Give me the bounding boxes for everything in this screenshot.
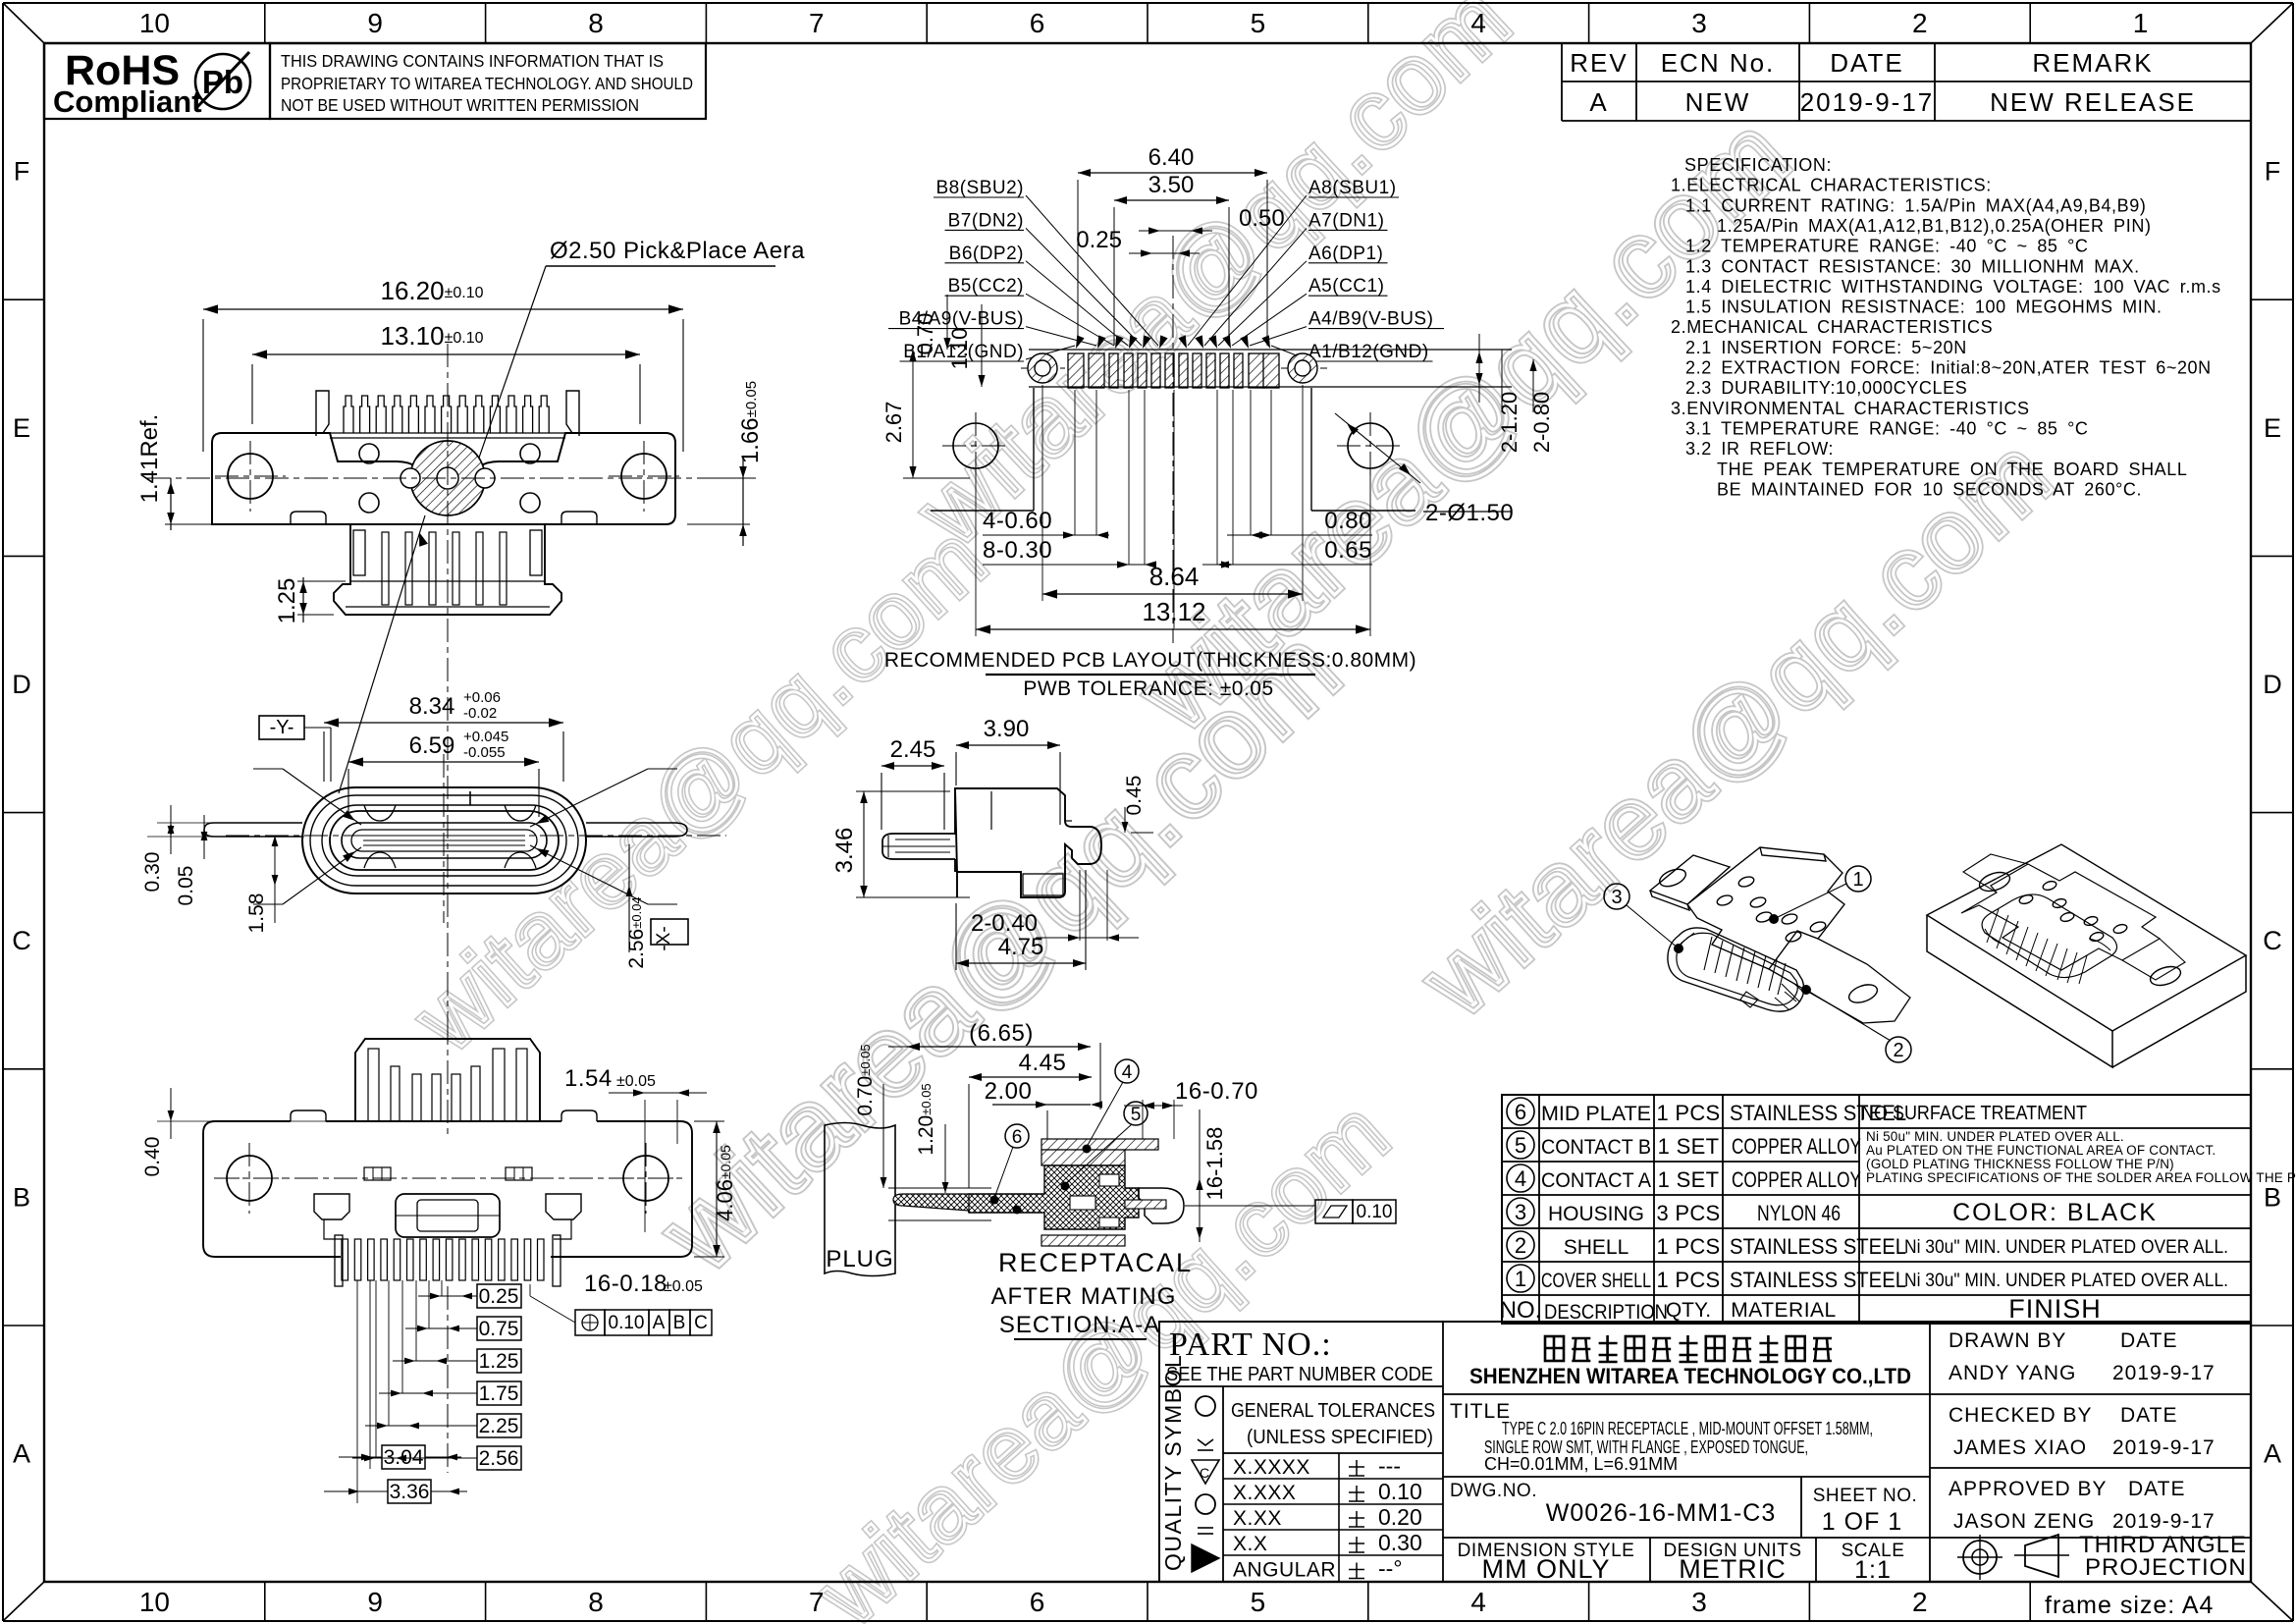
svg-text:A8(SBU1): A8(SBU1): [1308, 178, 1397, 198]
svg-text:+0.045: +0.045: [463, 729, 508, 745]
svg-text:±0.05: ±0.05: [664, 1278, 703, 1295]
svg-text:E: E: [2264, 413, 2281, 443]
svg-text:C: C: [694, 1313, 708, 1333]
svg-text:4-0.60: 4-0.60: [983, 508, 1052, 534]
svg-text:F: F: [2265, 157, 2281, 187]
svg-text:1.25: 1.25: [479, 1350, 519, 1373]
svg-text:6: 6: [1030, 8, 1045, 38]
svg-text:3.90: 3.90: [984, 716, 1030, 742]
svg-text:6.59: 6.59: [409, 732, 455, 759]
svg-text:B: B: [2264, 1182, 2281, 1212]
svg-text:8.64: 8.64: [1149, 562, 1200, 591]
svg-text:2.56: 2.56: [479, 1447, 519, 1470]
svg-text:B: B: [673, 1313, 686, 1333]
svg-text:NOT BE USED WITHOUT WRITTEN PE: NOT BE USED WITHOUT WRITTEN PERMISSION: [281, 95, 639, 115]
svg-text:4: 4: [1122, 1062, 1133, 1083]
svg-text:D: D: [2263, 670, 2282, 699]
svg-text:AFTER MATING: AFTER MATING: [991, 1283, 1177, 1310]
svg-text:1.3 CONTACT RESISTANCE: 30 MIL: 1.3 CONTACT RESISTANCE: 30 MILLIONHM MAX…: [1685, 256, 2140, 276]
svg-text:DATE: DATE: [2128, 1478, 2185, 1500]
svg-text:MM ONLY: MM ONLY: [1481, 1554, 1610, 1584]
svg-text:2.2 EXTRACTION FORCE: Initial:: 2.2 EXTRACTION FORCE: Initial:8~20N,ATER…: [1685, 358, 2212, 378]
svg-text:DESCRIPTION: DESCRIPTION: [1544, 1301, 1668, 1324]
svg-text:QUALITY SYMBOL: QUALITY SYMBOL: [1160, 1354, 1186, 1571]
svg-text:8: 8: [588, 8, 604, 38]
svg-text:B: B: [13, 1182, 30, 1212]
svg-text:PART NO.:: PART NO.:: [1169, 1326, 1332, 1363]
svg-text:1.10: 1.10: [947, 328, 972, 370]
svg-text:PWB TOLERANCE: ±0.05: PWB TOLERANCE: ±0.05: [1023, 677, 1273, 700]
svg-text:Ni 30u" MIN. UNDER PLATED OVER: Ni 30u" MIN. UNDER PLATED OVER ALL.: [1904, 1237, 2228, 1258]
svg-text:0.45: 0.45: [1123, 776, 1146, 816]
svg-text:0.10: 0.10: [1378, 1479, 1422, 1504]
svg-text:0.10: 0.10: [1357, 1202, 1393, 1222]
svg-text:GENERAL TOLERANCES: GENERAL TOLERANCES: [1231, 1400, 1435, 1422]
svg-text:2.1 INSERTION FORCE: 5~20N: 2.1 INSERTION FORCE: 5~20N: [1685, 338, 1967, 357]
svg-text:2019-9-17: 2019-9-17: [2112, 1510, 2216, 1533]
svg-text:2: 2: [1912, 8, 1928, 38]
svg-text:4.45: 4.45: [1019, 1050, 1067, 1076]
svg-text:3.1 TEMPERATURE RANGE: -40 °C: 3.1 TEMPERATURE RANGE: -40 °C ~ 85 °C: [1685, 418, 2089, 438]
svg-text:A6(DP1): A6(DP1): [1308, 244, 1383, 264]
svg-text:A7(DN1): A7(DN1): [1308, 210, 1384, 231]
svg-text:PLUG: PLUG: [826, 1246, 893, 1272]
svg-text:2.MECHANICAL CHARACTERISTICS: 2.MECHANICAL CHARACTERISTICS: [1671, 317, 1993, 337]
svg-text:16-0.70: 16-0.70: [1175, 1078, 1258, 1105]
svg-text:HOUSING: HOUSING: [1548, 1203, 1644, 1225]
svg-text:Ni 50u" MIN. UNDER PLATED OVER: Ni 50u" MIN. UNDER PLATED OVER ALL.: [1866, 1129, 2124, 1144]
svg-text:(6.65): (6.65): [969, 1020, 1034, 1047]
svg-text:THE PEAK TEMPERATURE ON THE BO: THE PEAK TEMPERATURE ON THE BOARD SHALL: [1717, 460, 2188, 479]
svg-text:CONTACT A: CONTACT A: [1541, 1169, 1651, 1192]
svg-text:X.XXXX: X.XXXX: [1233, 1456, 1310, 1479]
svg-text:SHENZHEN WITAREA TECHNOLOGY CO: SHENZHEN WITAREA TECHNOLOGY CO.,LTD: [1469, 1364, 1911, 1388]
svg-text:A1/B12(GND): A1/B12(GND): [1308, 342, 1429, 362]
svg-text:-0.055: -0.055: [463, 744, 506, 761]
svg-text:0.30: 0.30: [141, 852, 164, 893]
svg-text:0.50: 0.50: [1239, 205, 1285, 232]
svg-text:2.3 DURABILITY:10,000CYCLES: 2.3 DURABILITY:10,000CYCLES: [1685, 378, 1967, 398]
svg-text:1.4 DIELECTRIC WITHSTANDING VO: 1.4 DIELECTRIC WITHSTANDING VOLTAGE: 100…: [1685, 277, 2221, 297]
svg-text:ECN No.: ECN No.: [1661, 48, 1776, 78]
svg-text:1: 1: [2133, 8, 2149, 38]
svg-text:F: F: [14, 157, 30, 187]
svg-text:3.2 IR REFLOW:: 3.2 IR REFLOW:: [1685, 439, 1834, 459]
svg-text:CHECKED BY: CHECKED BY: [1949, 1404, 2093, 1427]
svg-text:10: 10: [139, 1587, 170, 1617]
svg-text:1.58: 1.58: [245, 893, 268, 934]
svg-text:0.20: 0.20: [1378, 1504, 1422, 1530]
svg-text:A: A: [1589, 87, 1608, 117]
svg-text:X.XX: X.XX: [1233, 1507, 1282, 1530]
svg-text:8.34: 8.34: [409, 693, 455, 720]
svg-text:1.1 CURRENT RATING: 1.5A/Pin M: 1.1 CURRENT RATING: 1.5A/Pin MAX(A4,A9,B…: [1685, 195, 2146, 215]
svg-text:B7(DN2): B7(DN2): [948, 210, 1024, 231]
svg-text:(GOLD PLATING THICKNESS FOLLOW: (GOLD PLATING THICKNESS FOLLOW THE P/N): [1866, 1157, 2174, 1171]
svg-text:1 OF 1: 1 OF 1: [1822, 1508, 1902, 1536]
svg-text:0.30: 0.30: [1378, 1530, 1422, 1555]
svg-text:13.12: 13.12: [1142, 597, 1205, 626]
svg-text:3: 3: [1691, 8, 1707, 38]
svg-text:MATERIAL: MATERIAL: [1731, 1299, 1836, 1322]
svg-text:3.04: 3.04: [384, 1446, 424, 1469]
svg-text:+0.06: +0.06: [463, 689, 501, 706]
svg-text:A: A: [13, 1439, 30, 1469]
svg-text:-X-: -X-: [654, 926, 674, 950]
svg-text:±0.05: ±0.05: [616, 1073, 656, 1090]
svg-text:RECEPTACAL: RECEPTACAL: [998, 1248, 1193, 1277]
svg-text:16-0.18: 16-0.18: [584, 1271, 667, 1297]
svg-text:STAINLESS STEEL: STAINLESS STEEL: [1730, 1268, 1906, 1292]
svg-text:1.54: 1.54: [564, 1065, 613, 1092]
svg-text:9: 9: [367, 8, 383, 38]
svg-text:-Y-: -Y-: [270, 717, 294, 738]
svg-text:SHELL: SHELL: [1564, 1236, 1629, 1259]
svg-text:1.25A/Pin MAX(A1,A12,B1,B12),0: 1.25A/Pin MAX(A1,A12,B1,B12),0.25A(OHER …: [1717, 216, 2152, 236]
svg-text:5: 5: [1251, 1587, 1266, 1617]
svg-text:1.ELECTRICAL CHARACTERISTICS:: 1.ELECTRICAL CHARACTERISTICS:: [1671, 176, 1992, 195]
svg-text:3.ENVIRONMENTAL CHARACTERISTI: 3.ENVIRONMENTAL CHARACTERISTICS: [1671, 399, 2030, 418]
svg-text:RECOMMENDED PCB LAYOUT(THICKNE: RECOMMENDED PCB LAYOUT(THICKNESS:0.80MM): [884, 649, 1416, 672]
svg-text:4.75: 4.75: [998, 934, 1044, 960]
svg-text:frame size: A4: frame size: A4: [2045, 1592, 2214, 1619]
svg-text:2-Ø1.50: 2-Ø1.50: [1425, 500, 1514, 526]
svg-text:2.25: 2.25: [479, 1415, 519, 1437]
svg-text:4: 4: [1470, 1587, 1486, 1617]
svg-text:2-0.40: 2-0.40: [971, 910, 1038, 937]
svg-text:6: 6: [1515, 1100, 1526, 1124]
svg-text:3: 3: [1515, 1200, 1526, 1224]
svg-text:SEE THE PART NUMBER CODE: SEE THE PART NUMBER CODE: [1166, 1364, 1433, 1385]
svg-text:DATE: DATE: [2120, 1329, 2177, 1352]
svg-text:METRIC: METRIC: [1679, 1554, 1787, 1584]
svg-text:2019-9-17: 2019-9-17: [2112, 1362, 2216, 1384]
svg-text:CONTACT B: CONTACT B: [1541, 1136, 1651, 1159]
svg-text:CH=0.01MM, L=6.91MM: CH=0.01MM, L=6.91MM: [1484, 1454, 1678, 1474]
svg-text:1.75: 1.75: [479, 1382, 519, 1405]
svg-text:8: 8: [588, 1587, 604, 1617]
svg-text:PLATING SPECIFICATIONS OF THE: PLATING SPECIFICATIONS OF THE SOLDER ARE…: [1866, 1170, 2296, 1185]
svg-text:1 SET: 1 SET: [1658, 1134, 1720, 1159]
svg-text:A: A: [2264, 1439, 2281, 1469]
svg-text:16-1.58: 16-1.58: [1202, 1127, 1227, 1201]
svg-text:A: A: [653, 1313, 666, 1333]
svg-text:1: 1: [1852, 869, 1863, 891]
svg-text:SPECIFICATION:: SPECIFICATION:: [1684, 155, 1832, 175]
svg-text:2.67: 2.67: [881, 402, 906, 444]
svg-text:NO.: NO.: [1500, 1297, 1542, 1324]
svg-text:3: 3: [1691, 1587, 1707, 1617]
svg-text:0.75: 0.75: [479, 1318, 519, 1340]
svg-text:REMARK: REMARK: [2032, 48, 2153, 78]
svg-text:A5(CC1): A5(CC1): [1308, 276, 1384, 297]
svg-text:JASON ZENG: JASON ZENG: [1953, 1510, 2095, 1533]
svg-text:NO SURFACE TREATMENT: NO SURFACE TREATMENT: [1861, 1103, 2087, 1124]
svg-text:(UNLESS SPECIFIED): (UNLESS SPECIFIED): [1247, 1427, 1433, 1448]
svg-text:COPPER ALLOY: COPPER ALLOY: [1732, 1167, 1861, 1192]
svg-text:0.70: 0.70: [913, 313, 937, 355]
svg-text:0.25: 0.25: [479, 1285, 519, 1308]
svg-text:1.25: 1.25: [274, 578, 300, 624]
svg-text:Ni 30u" MIN. UNDER PLATED OVER: Ni 30u" MIN. UNDER PLATED OVER ALL.: [1904, 1271, 2228, 1291]
svg-text:B5(CC2): B5(CC2): [948, 276, 1024, 297]
svg-text:5: 5: [1251, 8, 1266, 38]
svg-text:3: 3: [1611, 887, 1622, 908]
svg-text:7: 7: [809, 1587, 825, 1617]
svg-text:REV: REV: [1570, 48, 1628, 78]
svg-text:C: C: [1200, 1465, 1209, 1481]
svg-text:6: 6: [1030, 1587, 1045, 1617]
svg-text:--°: --°: [1378, 1556, 1403, 1582]
svg-text:7: 7: [809, 8, 825, 38]
svg-text:---: ---: [1378, 1453, 1401, 1479]
svg-text:0.10: 0.10: [609, 1313, 645, 1333]
svg-text:6: 6: [1012, 1127, 1023, 1148]
svg-text:A4/B9(V-BUS): A4/B9(V-BUS): [1308, 309, 1433, 330]
svg-text:1 PCS: 1 PCS: [1656, 1234, 1720, 1259]
svg-text:SECTION:A-A: SECTION:A-A: [999, 1312, 1160, 1338]
svg-text:W0026-16-MM1-C3: W0026-16-MM1-C3: [1546, 1499, 1777, 1527]
svg-text:NYLON 46: NYLON 46: [1757, 1201, 1841, 1225]
svg-text:0.25: 0.25: [1076, 227, 1122, 253]
svg-text:ANDY YANG: ANDY YANG: [1949, 1362, 2076, 1384]
svg-text:COLOR: BLACK: COLOR: BLACK: [1952, 1199, 2158, 1226]
svg-text:NEW: NEW: [1685, 87, 1751, 117]
svg-text:APPROVED BY: APPROVED BY: [1949, 1478, 2108, 1500]
svg-text:2019-9-17: 2019-9-17: [2112, 1436, 2216, 1459]
svg-text:1:1: 1:1: [1854, 1556, 1892, 1584]
svg-text:2.00: 2.00: [985, 1078, 1033, 1105]
svg-text:2.45: 2.45: [890, 736, 936, 763]
svg-text:PROJECTION: PROJECTION: [2085, 1554, 2247, 1581]
svg-text:4: 4: [1515, 1166, 1526, 1191]
svg-text:1: 1: [1515, 1267, 1526, 1291]
svg-text:DRAWN BY: DRAWN BY: [1949, 1329, 2066, 1352]
svg-text:B6(DP2): B6(DP2): [949, 244, 1024, 264]
svg-text:MID PLATE: MID PLATE: [1541, 1103, 1651, 1125]
svg-text:THIS DRAWING CONTAINS INFORMAT: THIS DRAWING CONTAINS INFORMATION THAT I…: [281, 51, 664, 71]
svg-text:2: 2: [1912, 1587, 1928, 1617]
svg-text:3.36: 3.36: [390, 1481, 430, 1503]
svg-text:ANGULAR: ANGULAR: [1233, 1559, 1336, 1582]
svg-text:C: C: [2263, 926, 2282, 955]
svg-text:5: 5: [1131, 1105, 1142, 1125]
svg-text:X.XXX: X.XXX: [1233, 1482, 1296, 1504]
svg-text:1 PCS: 1 PCS: [1656, 1101, 1720, 1125]
svg-text:4: 4: [1470, 8, 1486, 38]
svg-text:BE MAINTAINED FOR 10 SECONDS A: BE MAINTAINED FOR 10 SECONDS AT 260°C.: [1717, 479, 2142, 499]
svg-text:SHEET NO.: SHEET NO.: [1813, 1486, 1918, 1506]
svg-text:C: C: [12, 926, 31, 955]
svg-text:0.05: 0.05: [175, 866, 197, 906]
svg-text:2-1.20: 2-1.20: [1497, 392, 1522, 453]
svg-text:-0.02: -0.02: [463, 705, 497, 722]
svg-text:DATE: DATE: [2120, 1404, 2177, 1427]
svg-text:Au PLATED ON THE FUNCTIONAL AR: Au PLATED ON THE FUNCTIONAL AREA OF CONT…: [1866, 1143, 2216, 1158]
svg-text:1.2 TEMPERATURE RANGE: -40 °C: 1.2 TEMPERATURE RANGE: -40 °C ~ 85 °C: [1685, 237, 2089, 256]
svg-text:D: D: [12, 670, 31, 699]
svg-text:B8(SBU2): B8(SBU2): [935, 178, 1024, 198]
svg-text:10: 10: [139, 8, 170, 38]
svg-text:FINISH: FINISH: [2008, 1294, 2102, 1324]
svg-text:3.46: 3.46: [831, 828, 858, 874]
svg-text:COVER SHELL: COVER SHELL: [1541, 1270, 1651, 1292]
svg-text:TYPE C 2.0 16PIN RECEPTACLE ,: TYPE C 2.0 16PIN RECEPTACLE , MID-MOUNT …: [1502, 1419, 1873, 1438]
svg-text:JAMES XIAO: JAMES XIAO: [1953, 1436, 2087, 1459]
svg-text:X.X: X.X: [1233, 1533, 1267, 1555]
svg-text:0.65: 0.65: [1324, 537, 1372, 564]
svg-text:DWG.NO.: DWG.NO.: [1450, 1481, 1537, 1501]
svg-text:9: 9: [367, 1587, 383, 1617]
svg-text:1 PCS: 1 PCS: [1656, 1268, 1720, 1292]
svg-text:6.40: 6.40: [1148, 144, 1195, 171]
svg-text:2019-9-17: 2019-9-17: [1800, 87, 1935, 117]
svg-text:0.80: 0.80: [1324, 508, 1372, 534]
svg-text:NEW RELEASE: NEW RELEASE: [1990, 87, 2196, 117]
svg-text:2: 2: [1893, 1040, 1903, 1061]
svg-text:STAINLESS STEEL: STAINLESS STEEL: [1730, 1234, 1906, 1259]
svg-text:2: 2: [1515, 1233, 1526, 1258]
svg-text:1.5 INSULATION RESISTNACE: 100: 1.5 INSULATION RESISTNACE: 100 MEGOHMS M…: [1685, 298, 2163, 317]
svg-text:3 PCS: 3 PCS: [1656, 1201, 1720, 1225]
svg-text:5: 5: [1515, 1133, 1526, 1158]
svg-text:8-0.30: 8-0.30: [983, 537, 1052, 564]
svg-text:1 SET: 1 SET: [1658, 1167, 1720, 1192]
svg-text:1.41Ref.: 1.41Ref.: [136, 414, 163, 504]
svg-text:DATE: DATE: [1830, 48, 1903, 78]
svg-text:COPPER ALLOY: COPPER ALLOY: [1732, 1134, 1861, 1159]
svg-text:QTY.: QTY.: [1666, 1299, 1711, 1322]
svg-text:3.50: 3.50: [1148, 172, 1195, 198]
svg-text:Compliant: Compliant: [53, 84, 202, 119]
svg-text:PROPRIETARY TO WITAREA TECHNOL: PROPRIETARY TO WITAREA TECHNOLOGY. AND S…: [281, 74, 693, 93]
svg-text:E: E: [13, 413, 30, 443]
svg-text:0.40: 0.40: [141, 1137, 164, 1177]
svg-text:Ø2.50 Pick&Place Aera: Ø2.50 Pick&Place Aera: [550, 238, 805, 264]
